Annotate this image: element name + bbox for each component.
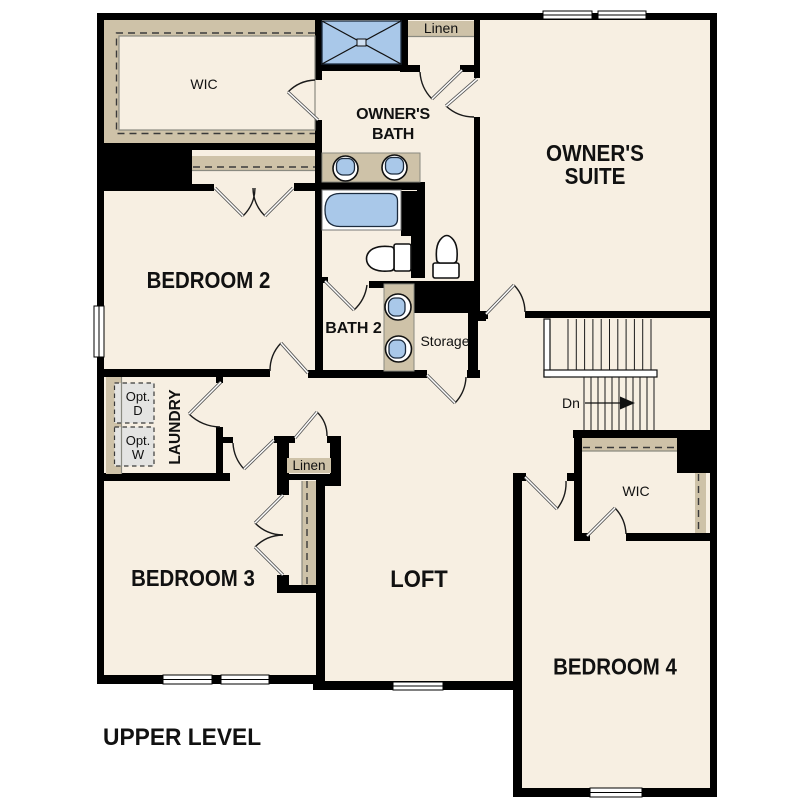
svg-text:W: W bbox=[132, 447, 145, 462]
svg-text:BEDROOM 3: BEDROOM 3 bbox=[131, 565, 255, 592]
svg-text:BATH: BATH bbox=[372, 126, 414, 143]
svg-text:BEDROOM 2: BEDROOM 2 bbox=[147, 267, 271, 294]
svg-text:UPPER LEVEL: UPPER LEVEL bbox=[103, 724, 261, 751]
svg-text:LOFT: LOFT bbox=[390, 565, 448, 592]
svg-text:Storage: Storage bbox=[420, 333, 469, 349]
svg-text:D: D bbox=[133, 403, 142, 418]
svg-text:Linen: Linen bbox=[424, 20, 458, 36]
svg-text:BEDROOM 4: BEDROOM 4 bbox=[553, 653, 677, 680]
svg-text:OWNER'S: OWNER'S bbox=[356, 106, 430, 123]
svg-text:LAUNDRY: LAUNDRY bbox=[167, 389, 184, 465]
svg-text:Linen: Linen bbox=[292, 458, 325, 473]
svg-text:BATH 2: BATH 2 bbox=[325, 320, 382, 337]
svg-text:Dn: Dn bbox=[562, 395, 580, 411]
svg-text:Opt.: Opt. bbox=[126, 389, 151, 404]
svg-text:WIC: WIC bbox=[190, 76, 217, 92]
svg-text:WIC: WIC bbox=[622, 483, 649, 499]
svg-text:SUITE: SUITE bbox=[565, 163, 626, 190]
svg-text:Opt.: Opt. bbox=[126, 433, 151, 448]
